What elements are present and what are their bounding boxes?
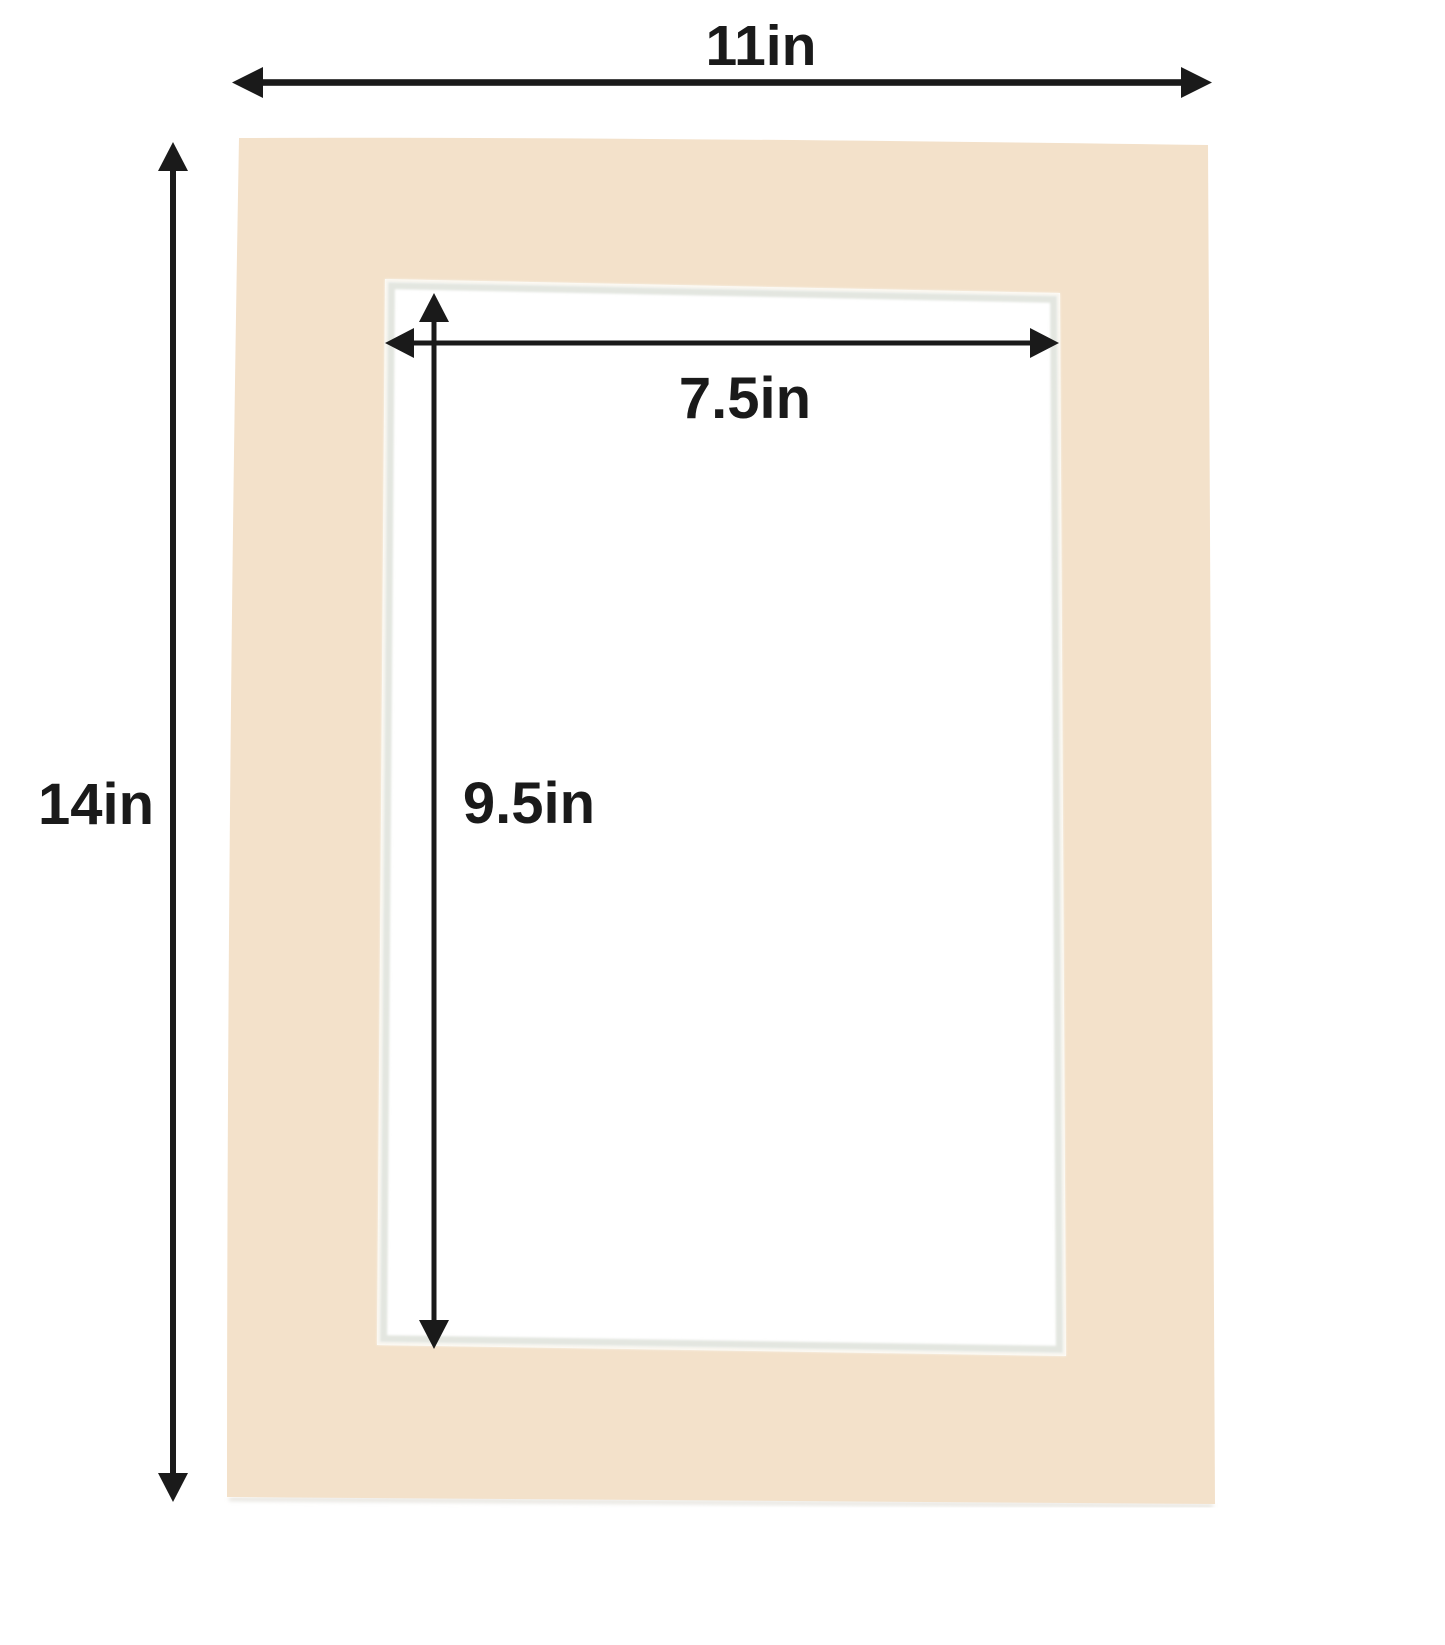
svg-text:11in: 11in [706,14,817,78]
svg-text:7.5in: 7.5in [679,366,811,431]
svg-text:14in: 14in [38,772,154,837]
svg-text:9.5in: 9.5in [463,771,595,836]
